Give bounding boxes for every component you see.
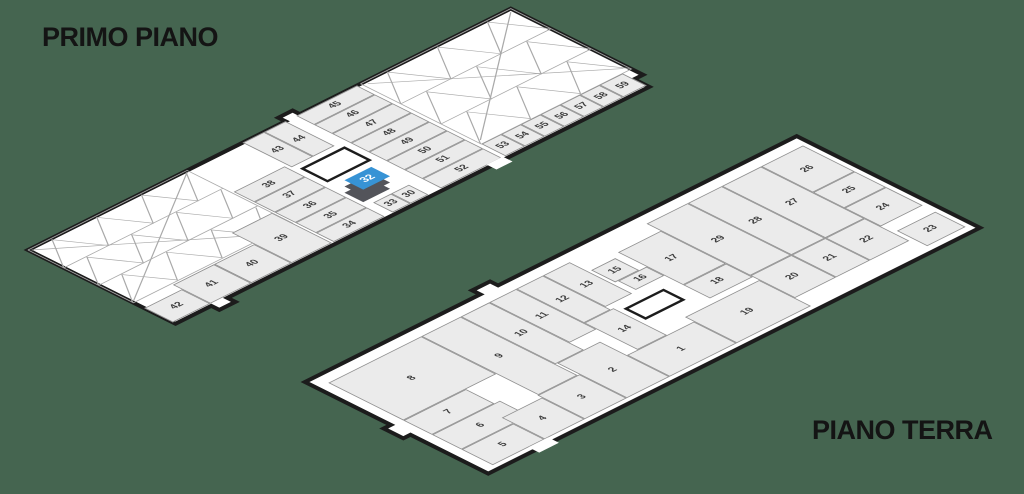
booth-label: 48 xyxy=(381,128,400,137)
booth-label: 44 xyxy=(290,134,309,143)
booth-label: 35 xyxy=(322,210,341,219)
booth-label: 49 xyxy=(399,137,418,146)
booth-label: 24 xyxy=(874,202,893,211)
booth-label: 2 xyxy=(606,366,620,373)
booth-label: 50 xyxy=(416,146,435,155)
booth-label: 23 xyxy=(922,224,941,233)
booth-label: 12 xyxy=(554,295,573,304)
booth-label: 3 xyxy=(575,393,589,400)
booth-label: 28 xyxy=(747,216,766,225)
booth-label: 54 xyxy=(513,131,532,140)
booth-label: 59 xyxy=(614,81,633,90)
booth-label: 4 xyxy=(536,415,550,422)
booth-label: 36 xyxy=(301,200,320,209)
booth-label: 8 xyxy=(405,375,419,382)
booth-label: 52 xyxy=(453,164,472,173)
booth-label: 58 xyxy=(592,91,611,100)
booth-label: 26 xyxy=(798,164,817,173)
booth-label: 45 xyxy=(326,100,345,109)
booth-label: 55 xyxy=(533,121,552,130)
booth-label: 37 xyxy=(280,190,299,199)
booth-label: 43 xyxy=(268,145,287,154)
booth-label: 9 xyxy=(492,352,506,359)
booth-label: 11 xyxy=(534,311,552,320)
booth-label: 30 xyxy=(400,189,419,198)
booth-label: 47 xyxy=(362,119,381,128)
booth-label: 13 xyxy=(578,280,597,289)
booth-label: 15 xyxy=(606,266,625,275)
booth-label: 42 xyxy=(168,301,187,310)
booth-label: 46 xyxy=(344,109,363,118)
booth-label: 22 xyxy=(858,235,877,244)
booth-label: 5 xyxy=(496,441,510,448)
booth-label: 6 xyxy=(474,422,488,429)
highlighted-booth-label: 32 xyxy=(356,173,378,184)
booth-label: 7 xyxy=(442,408,456,415)
booth-label: 21 xyxy=(821,253,840,262)
booth-label: 20 xyxy=(784,272,803,281)
booth-label: 27 xyxy=(784,198,803,207)
booth-label: 16 xyxy=(632,274,651,283)
booth-label: 18 xyxy=(709,276,728,285)
floor-title-primo-piano: PRIMO PIANO xyxy=(42,22,218,53)
booth-label: 56 xyxy=(553,111,572,120)
booth-label: 14 xyxy=(616,324,635,333)
booth-label: 17 xyxy=(663,253,682,262)
booth-label: 39 xyxy=(272,233,291,242)
booth-label: 1 xyxy=(675,346,689,353)
booth-label: 25 xyxy=(840,185,859,194)
booth-label: 53 xyxy=(494,140,513,149)
booth-label: 38 xyxy=(260,180,279,189)
booth-label: 33 xyxy=(382,198,401,207)
booth-label: 19 xyxy=(739,307,758,316)
booth-label: 40 xyxy=(243,259,262,268)
booth-label: 57 xyxy=(572,101,591,110)
booth-label: 51 xyxy=(434,155,453,164)
floor-title-piano-terra: PIANO TERRA xyxy=(812,415,993,446)
booth-label: 29 xyxy=(709,235,728,244)
booth-label: 41 xyxy=(203,279,222,288)
booth-label: 10 xyxy=(513,329,532,338)
booth-label: 34 xyxy=(341,220,360,229)
floorplan-canvas: PRIMO PIANO PIANO TERRA 4241403938373635… xyxy=(0,0,1024,494)
